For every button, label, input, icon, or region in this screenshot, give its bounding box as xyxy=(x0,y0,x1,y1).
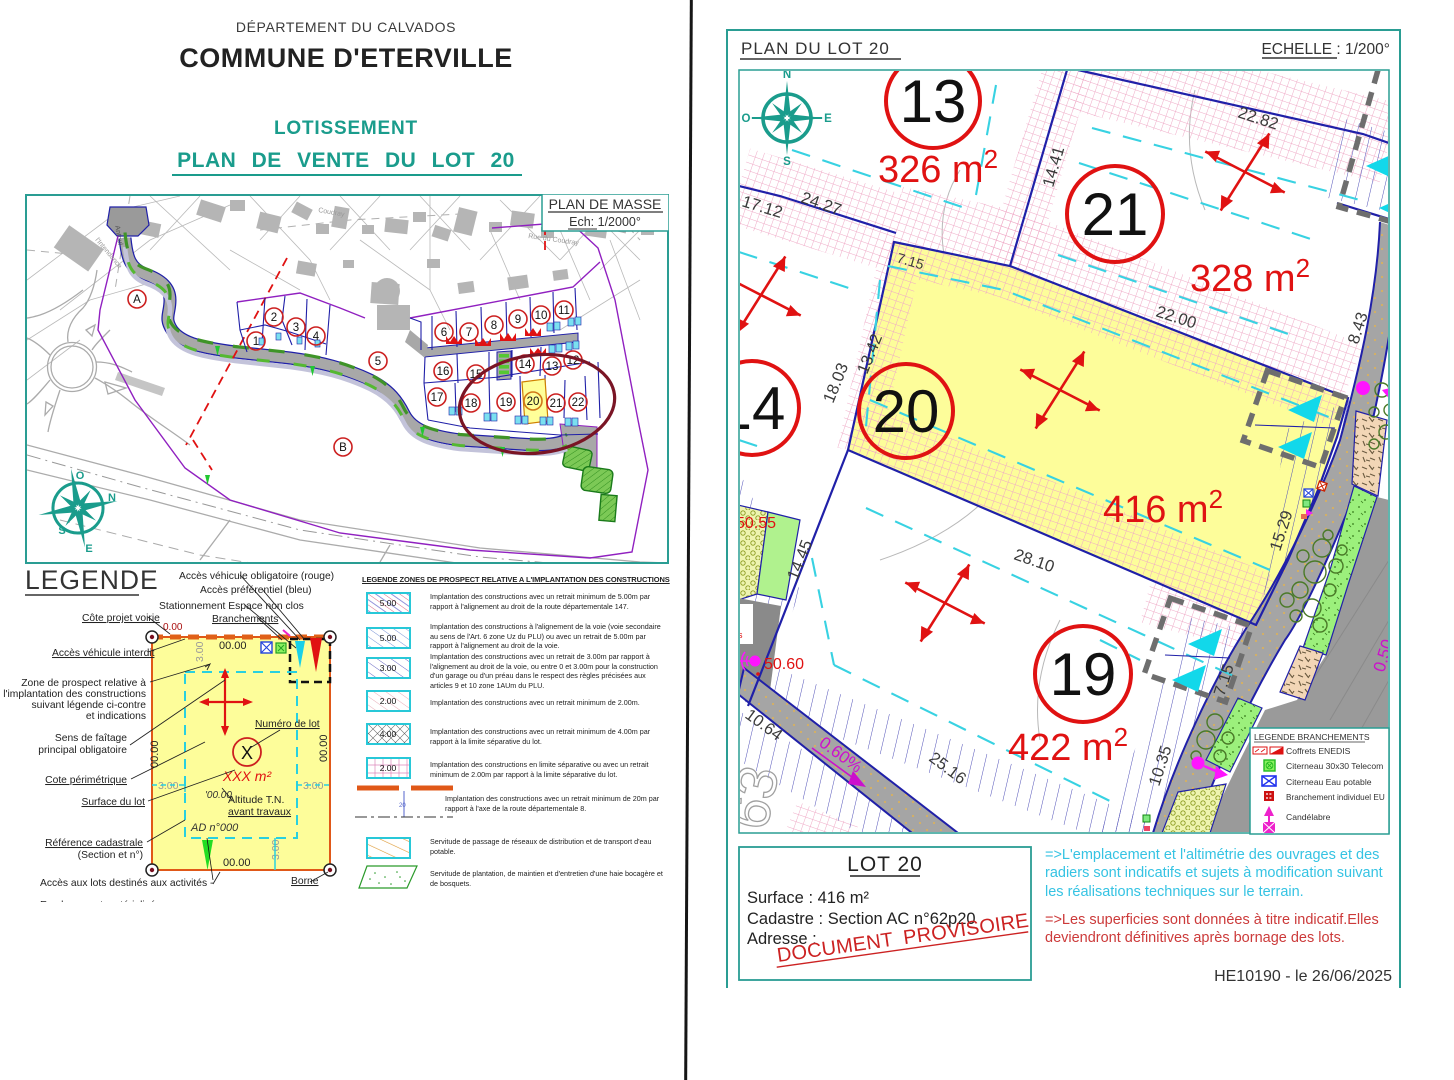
svg-text:5.00: 5.00 xyxy=(380,633,397,643)
svg-text:20: 20 xyxy=(527,396,540,408)
svg-text:2.00: 2.00 xyxy=(380,763,397,773)
svg-text:Sens de faîtage: Sens de faîtage xyxy=(55,733,127,744)
svg-text:Surface : 416 m²: Surface : 416 m² xyxy=(747,889,869,907)
svg-text:2.00: 2.00 xyxy=(380,696,397,706)
svg-text:3.00: 3.00 xyxy=(270,839,282,860)
svg-text:HE10190 - le 26/06/2025: HE10190 - le 26/06/2025 xyxy=(1214,968,1392,985)
svg-text:Branchement individuel EU: Branchement individuel EU xyxy=(1286,793,1385,802)
svg-text:N: N xyxy=(108,492,116,504)
svg-text:1: 1 xyxy=(253,336,259,348)
svg-text:LEGENDE BRANCHEMENTS: LEGENDE BRANCHEMENTS xyxy=(1254,732,1370,742)
svg-text:00.00: 00.00 xyxy=(318,734,330,762)
svg-text:6: 6 xyxy=(441,327,447,339)
svg-text:Numéro de lot: Numéro de lot xyxy=(255,719,320,730)
svg-text:14: 14 xyxy=(519,359,532,371)
svg-text:(Section et n°): (Section et n°) xyxy=(78,850,143,861)
svg-text:3.00: 3.00 xyxy=(303,780,324,792)
svg-text:avant travaux: avant travaux xyxy=(228,806,292,818)
svg-text:Altitude T.N.: Altitude T.N. xyxy=(228,794,284,806)
svg-text:3.00: 3.00 xyxy=(380,663,397,673)
svg-text:00.00: 00.00 xyxy=(149,740,161,768)
svg-text:Borne: Borne xyxy=(291,876,319,887)
svg-text:13: 13 xyxy=(546,361,559,373)
svg-text:422 m2: 422 m2 xyxy=(1008,722,1128,769)
svg-text:19: 19 xyxy=(1050,641,1117,708)
svg-text:AD n°000: AD n°000 xyxy=(190,822,239,834)
svg-text:Côte projet voirie: Côte projet voirie xyxy=(82,613,160,624)
svg-text:S: S xyxy=(783,156,791,168)
svg-text:21: 21 xyxy=(1082,181,1149,248)
svg-text:8: 8 xyxy=(491,320,497,332)
svg-text:11: 11 xyxy=(558,305,570,317)
svg-text:20: 20 xyxy=(399,803,406,809)
svg-text:Citerneau Eau potable: Citerneau Eau potable xyxy=(1286,777,1372,787)
svg-text:22: 22 xyxy=(572,397,585,409)
svg-text:E: E xyxy=(824,113,832,125)
svg-text:4.00: 4.00 xyxy=(380,729,397,739)
svg-text:Stationnement Espace non clos: Stationnement Espace non clos xyxy=(159,601,304,612)
svg-text:10: 10 xyxy=(535,310,548,322)
svg-text:principal obligatoire: principal obligatoire xyxy=(38,745,127,756)
svg-text:4: 4 xyxy=(313,331,320,343)
svg-text:7: 7 xyxy=(466,327,472,339)
svg-text:16: 16 xyxy=(437,366,450,378)
svg-text:PLAN DE MASSE: PLAN DE MASSE xyxy=(549,196,662,212)
svg-text:l'implantation des constructio: l'implantation des constructions xyxy=(3,689,146,700)
svg-text:50.55: 50.55 xyxy=(736,515,776,532)
svg-text:3.00: 3.00 xyxy=(194,641,206,662)
svg-text:18: 18 xyxy=(465,398,478,410)
svg-text:00.00: 00.00 xyxy=(223,857,251,869)
svg-text:O: O xyxy=(742,113,751,125)
svg-text:A: A xyxy=(133,294,141,306)
svg-text:Référence cadastrale: Référence cadastrale xyxy=(45,838,143,849)
svg-text:LOT 20: LOT 20 xyxy=(847,853,923,876)
svg-text:9: 9 xyxy=(515,314,521,326)
svg-text:Surface du lot: Surface du lot xyxy=(81,797,145,808)
svg-text:Citerneau 30x30 Telecom: Citerneau 30x30 Telecom xyxy=(1286,761,1383,771)
svg-text:suivant légende ci-contre: suivant légende ci-contre xyxy=(32,700,147,711)
svg-text:2: 2 xyxy=(271,312,277,324)
svg-text:Ech: 1/2000°: Ech: 1/2000° xyxy=(569,215,641,229)
svg-text:19: 19 xyxy=(500,397,513,409)
svg-text:Coffrets ENEDIS: Coffrets ENEDIS xyxy=(1286,746,1351,756)
svg-text:Cote périmétrique: Cote périmétrique xyxy=(45,775,127,786)
svg-text:326 m2: 326 m2 xyxy=(878,144,998,191)
svg-text:Zone de prospect relative à: Zone de prospect relative à xyxy=(21,678,146,689)
svg-text:50.60: 50.60 xyxy=(764,656,804,673)
svg-text:17: 17 xyxy=(431,392,444,404)
svg-text:00.00: 00.00 xyxy=(219,640,247,652)
svg-text:Accès véhicule obligatoire (ro: Accès véhicule obligatoire (rouge) xyxy=(179,571,334,582)
svg-text:3: 3 xyxy=(293,322,299,334)
svg-text:20: 20 xyxy=(873,378,940,445)
svg-text:O: O xyxy=(76,470,85,482)
svg-text:PLAN DU LOT 20: PLAN DU LOT 20 xyxy=(741,39,890,58)
svg-text:LEGENDE: LEGENDE xyxy=(25,565,159,595)
svg-text:Accès préférentiel (bleu): Accès préférentiel (bleu) xyxy=(200,585,312,596)
svg-text:Branchements: Branchements xyxy=(212,614,278,625)
svg-text:21: 21 xyxy=(550,398,563,410)
svg-text:Accès aux lots destinés aux ac: Accès aux lots destinés aux activités - xyxy=(40,878,213,889)
svg-text:B: B xyxy=(339,442,347,454)
svg-text:5: 5 xyxy=(375,356,381,368)
svg-text:Candélabre: Candélabre xyxy=(1286,812,1331,822)
svg-text:416 m2: 416 m2 xyxy=(1103,484,1223,531)
svg-text:et indications: et indications xyxy=(86,711,146,722)
svg-text:S: S xyxy=(58,525,65,537)
svg-text:3.00: 3.00 xyxy=(158,780,179,792)
svg-text:E: E xyxy=(85,543,92,555)
svg-text:X: X xyxy=(241,743,253,763)
svg-text:328 m2: 328 m2 xyxy=(1190,253,1310,300)
svg-text:13: 13 xyxy=(900,68,967,135)
svg-text:ECHELLE : 1/200°: ECHELLE : 1/200° xyxy=(1261,41,1390,58)
svg-text:XXX m²: XXX m² xyxy=(222,768,273,784)
svg-text:Accès véhicule interdit: Accès véhicule interdit xyxy=(52,648,155,659)
svg-text:5.00: 5.00 xyxy=(380,598,397,608)
